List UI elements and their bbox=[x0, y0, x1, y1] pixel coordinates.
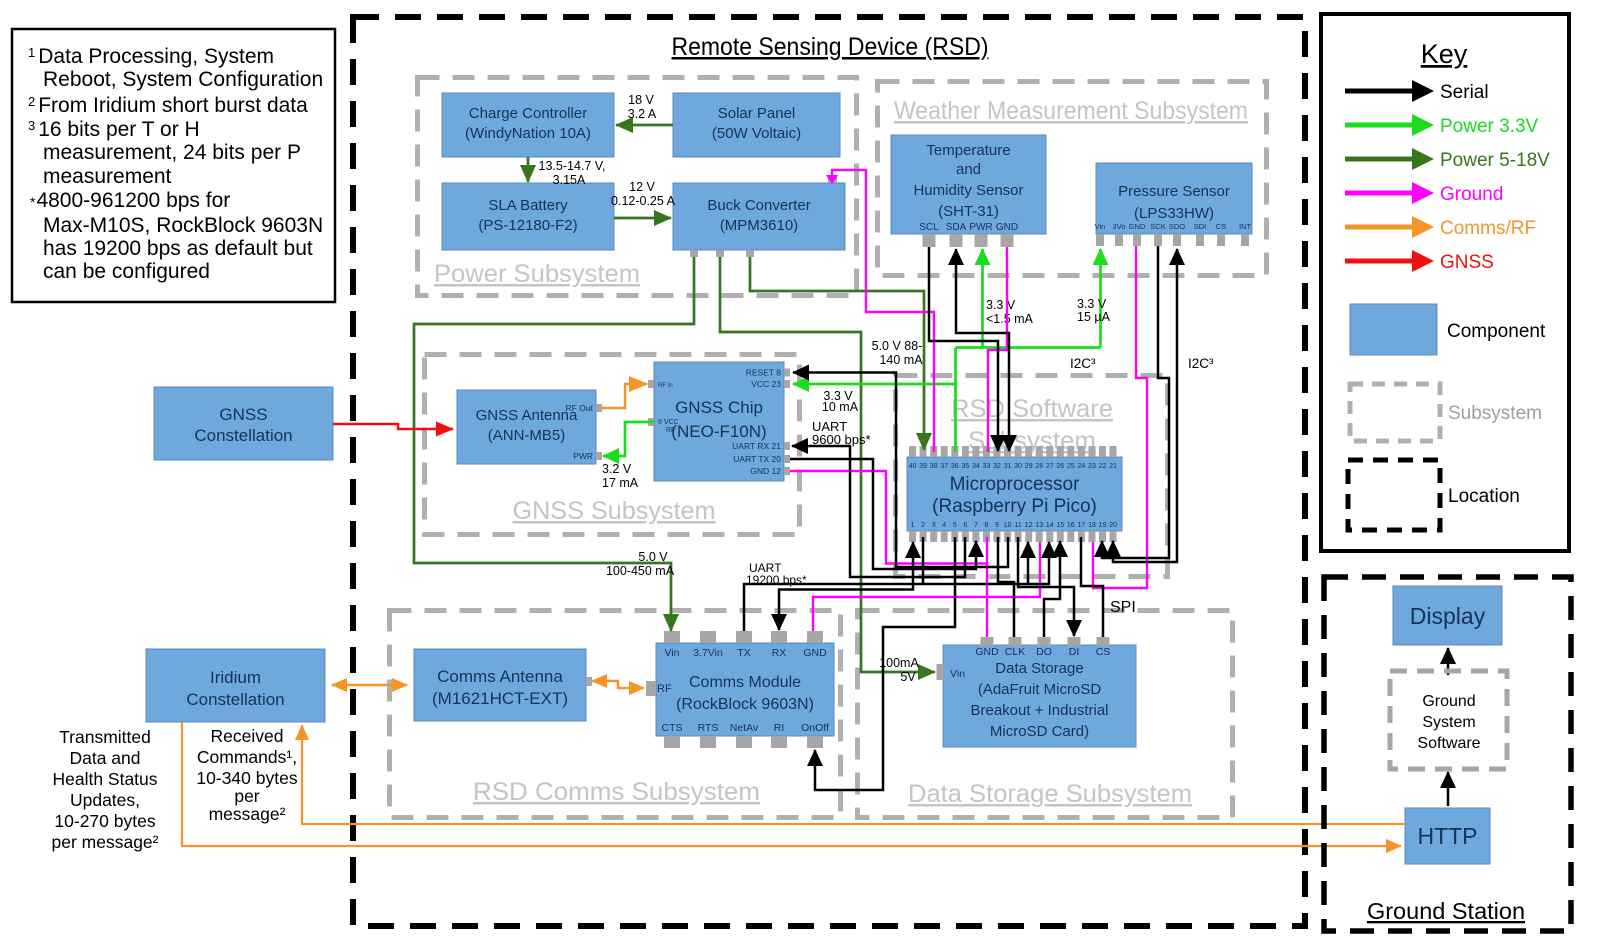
svg-text:7: 7 bbox=[974, 522, 978, 529]
svg-text:*4800-961200 bps for: *4800-961200 bps for bbox=[30, 189, 230, 212]
svg-text:28: 28 bbox=[1035, 463, 1043, 470]
svg-text:SPI: SPI bbox=[1110, 599, 1136, 616]
svg-text:34: 34 bbox=[972, 463, 980, 470]
svg-text:SDO: SDO bbox=[1169, 222, 1185, 231]
svg-text:Solar Panel: Solar Panel bbox=[718, 105, 796, 122]
svg-text:5.0 V: 5.0 V bbox=[638, 550, 668, 564]
svg-text:20: 20 bbox=[1109, 522, 1117, 529]
svg-text:37: 37 bbox=[940, 463, 948, 470]
svg-text:12: 12 bbox=[1025, 522, 1033, 529]
svg-text:Data and: Data and bbox=[69, 748, 140, 768]
svg-text:Power Subsystem: Power Subsystem bbox=[434, 260, 640, 288]
svg-text:Key: Key bbox=[1421, 39, 1468, 69]
svg-text:CS: CS bbox=[1216, 222, 1226, 231]
svg-text:26: 26 bbox=[1056, 463, 1064, 470]
svg-text:9 VCC: 9 VCC bbox=[658, 419, 679, 426]
svg-text:15: 15 bbox=[1056, 522, 1064, 529]
svg-text:25: 25 bbox=[1067, 463, 1075, 470]
svg-text:(WindyNation 10A): (WindyNation 10A) bbox=[465, 125, 591, 142]
svg-text:29: 29 bbox=[1025, 463, 1033, 470]
svg-text:316 bits per T or H: 316 bits per T or H bbox=[28, 118, 200, 141]
svg-text:10-270 bytes: 10-270 bytes bbox=[54, 811, 155, 831]
svg-text:Comms/RF: Comms/RF bbox=[1440, 218, 1536, 239]
svg-text:33: 33 bbox=[983, 463, 991, 470]
svg-text:1Data Processing, System: 1Data Processing, System bbox=[28, 45, 274, 68]
svg-text:23: 23 bbox=[1088, 463, 1096, 470]
svg-text:has 19200 bps as default but: has 19200 bps as default but bbox=[43, 237, 313, 260]
svg-text:RI: RI bbox=[774, 722, 785, 734]
svg-text:Software: Software bbox=[1417, 735, 1480, 752]
svg-text:Weather Measurement Subsystem: Weather Measurement Subsystem bbox=[894, 97, 1248, 125]
svg-text:3.3 V: 3.3 V bbox=[986, 298, 1016, 312]
svg-text:15 µA: 15 µA bbox=[1077, 310, 1111, 324]
svg-text:and: and bbox=[956, 161, 981, 178]
svg-text:SCL: SCL bbox=[919, 222, 939, 233]
svg-text:CTS: CTS bbox=[662, 722, 683, 734]
svg-text:5.0 V 88-: 5.0 V 88- bbox=[872, 339, 923, 353]
svg-text:2: 2 bbox=[921, 522, 925, 529]
svg-text:36: 36 bbox=[951, 463, 959, 470]
svg-text:Location: Location bbox=[1448, 486, 1520, 507]
svg-text:13: 13 bbox=[1035, 522, 1043, 529]
svg-text:3.2 V: 3.2 V bbox=[602, 462, 632, 476]
svg-text:Constellation: Constellation bbox=[194, 426, 292, 445]
svg-text:11: 11 bbox=[1014, 522, 1021, 529]
svg-text:OnOff: OnOff bbox=[801, 722, 829, 734]
svg-text:RESET 8: RESET 8 bbox=[746, 368, 782, 378]
svg-text:Breakout + Industrial: Breakout + Industrial bbox=[971, 702, 1109, 719]
svg-text:4: 4 bbox=[942, 522, 946, 529]
svg-text:Component: Component bbox=[1447, 321, 1546, 342]
svg-text:Vin: Vin bbox=[1095, 222, 1106, 231]
svg-text:(MPM3610): (MPM3610) bbox=[720, 217, 798, 234]
svg-text:RX: RX bbox=[772, 647, 787, 659]
svg-text:(SHT-31): (SHT-31) bbox=[938, 203, 999, 220]
svg-text:I2C³: I2C³ bbox=[1070, 356, 1096, 371]
svg-text:UART TX 20: UART TX 20 bbox=[733, 454, 781, 464]
svg-text:Vin: Vin bbox=[665, 647, 680, 659]
svg-text:40: 40 bbox=[909, 463, 917, 470]
svg-text:RF Out: RF Out bbox=[566, 403, 594, 413]
svg-text:Remote Sensing Device (RSD): Remote Sensing Device (RSD) bbox=[672, 33, 989, 61]
svg-text:Display: Display bbox=[1410, 603, 1486, 629]
svg-text:GNSS Subsystem: GNSS Subsystem bbox=[513, 497, 716, 525]
svg-text:2From Iridium short burst data: 2From Iridium short burst data bbox=[28, 94, 308, 117]
svg-text:17: 17 bbox=[1078, 522, 1086, 529]
svg-text:9: 9 bbox=[995, 522, 999, 529]
svg-text:(Raspberry Pi Pico): (Raspberry Pi Pico) bbox=[932, 496, 1097, 517]
svg-text:3.7Vin: 3.7Vin bbox=[693, 647, 723, 659]
svg-text:Vin: Vin bbox=[950, 668, 965, 680]
svg-text:27: 27 bbox=[1046, 463, 1054, 470]
svg-text:SDI: SDI bbox=[1194, 222, 1207, 231]
svg-text:RF: RF bbox=[666, 427, 675, 434]
svg-text:Comms Antenna: Comms Antenna bbox=[437, 667, 563, 686]
svg-text:DO: DO bbox=[1036, 646, 1052, 658]
svg-text:CLK: CLK bbox=[1005, 646, 1025, 658]
svg-text:GND: GND bbox=[803, 647, 827, 659]
svg-text:(RockBlock 9603N): (RockBlock 9603N) bbox=[676, 696, 814, 713]
svg-text:Health Status: Health Status bbox=[52, 769, 157, 789]
svg-text:Max-M10S, RockBlock 9603N: Max-M10S, RockBlock 9603N bbox=[43, 214, 323, 237]
svg-text:SCK: SCK bbox=[1150, 222, 1165, 231]
svg-text:5V: 5V bbox=[900, 670, 916, 684]
svg-text:RSD Comms Subsystem: RSD Comms Subsystem bbox=[473, 778, 760, 806]
svg-text:GND: GND bbox=[975, 646, 999, 658]
svg-text:SLA Battery: SLA Battery bbox=[488, 197, 568, 214]
svg-text:35: 35 bbox=[962, 463, 970, 470]
svg-text:Comms Module: Comms Module bbox=[689, 674, 801, 691]
svg-text:System: System bbox=[1422, 714, 1475, 731]
svg-text:14: 14 bbox=[1046, 522, 1054, 529]
svg-text:MicroSD Card): MicroSD Card) bbox=[990, 723, 1089, 740]
svg-text:10-340 bytes: 10-340 bytes bbox=[196, 768, 297, 788]
svg-text:GND 12: GND 12 bbox=[750, 466, 781, 476]
svg-text:SDA: SDA bbox=[946, 222, 967, 233]
svg-text:Humidity Sensor: Humidity Sensor bbox=[913, 182, 1023, 199]
svg-text:(LPS33HW): (LPS33HW) bbox=[1134, 205, 1214, 222]
svg-text:140 mA: 140 mA bbox=[879, 353, 923, 367]
svg-text:GNSS: GNSS bbox=[219, 405, 267, 424]
svg-text:18 V: 18 V bbox=[628, 93, 654, 107]
svg-text:Subsystem: Subsystem bbox=[1448, 403, 1542, 424]
svg-text:6: 6 bbox=[963, 522, 967, 529]
svg-text:Charge Controller: Charge Controller bbox=[469, 105, 587, 122]
svg-text:Temperature: Temperature bbox=[926, 142, 1010, 159]
svg-text:HTTP: HTTP bbox=[1417, 823, 1477, 849]
svg-text:CS: CS bbox=[1096, 646, 1111, 658]
svg-text:Data Storage: Data Storage bbox=[995, 660, 1083, 677]
svg-text:PWR: PWR bbox=[969, 222, 992, 233]
svg-text:GNSS: GNSS bbox=[1440, 252, 1494, 273]
svg-text:31: 31 bbox=[1004, 463, 1012, 470]
svg-text:1: 1 bbox=[911, 522, 915, 529]
svg-text:Iridium: Iridium bbox=[210, 668, 261, 687]
svg-text:100mA: 100mA bbox=[879, 656, 919, 670]
svg-text:Commands¹,: Commands¹, bbox=[197, 747, 297, 767]
svg-text:10 mA: 10 mA bbox=[822, 400, 859, 414]
svg-text:DI: DI bbox=[1069, 646, 1080, 658]
svg-text:GNSS Chip: GNSS Chip bbox=[675, 398, 763, 417]
svg-text:(NEO-F10N): (NEO-F10N) bbox=[671, 422, 766, 441]
svg-text:Ground: Ground bbox=[1422, 693, 1475, 710]
svg-text:9600 bps*: 9600 bps* bbox=[812, 432, 871, 447]
svg-text:5: 5 bbox=[953, 522, 957, 529]
svg-text:(M1621HCT-EXT): (M1621HCT-EXT) bbox=[432, 689, 568, 708]
svg-text:19: 19 bbox=[1099, 522, 1107, 529]
svg-text:INT: INT bbox=[1239, 222, 1252, 231]
svg-text:39: 39 bbox=[919, 463, 927, 470]
svg-text:per message²: per message² bbox=[52, 832, 159, 852]
svg-text:Pressure Sensor: Pressure Sensor bbox=[1118, 183, 1230, 200]
svg-text:21: 21 bbox=[1109, 463, 1117, 470]
svg-text:24: 24 bbox=[1078, 463, 1086, 470]
svg-text:19200 bps*: 19200 bps* bbox=[746, 573, 807, 587]
svg-text:PWR: PWR bbox=[573, 451, 593, 461]
svg-text:32: 32 bbox=[993, 463, 1001, 470]
svg-text:Ground Station: Ground Station bbox=[1367, 898, 1525, 924]
svg-text:Updates,: Updates, bbox=[70, 790, 140, 810]
svg-text:UART RX 21: UART RX 21 bbox=[732, 441, 781, 451]
svg-text:12 V: 12 V bbox=[629, 180, 655, 194]
svg-text:RSD Software: RSD Software bbox=[951, 395, 1113, 423]
svg-text:3.2 A: 3.2 A bbox=[628, 107, 657, 121]
svg-text:17 mA: 17 mA bbox=[602, 476, 639, 490]
svg-text:Received: Received bbox=[211, 726, 284, 746]
svg-text:Ground: Ground bbox=[1440, 184, 1503, 205]
svg-text:can be configured: can be configured bbox=[43, 260, 210, 283]
svg-text:0.12-0.25 A: 0.12-0.25 A bbox=[611, 194, 676, 208]
svg-text:3.15A: 3.15A bbox=[553, 173, 586, 187]
svg-text:Microprocessor: Microprocessor bbox=[950, 474, 1081, 495]
svg-text:RF In: RF In bbox=[658, 383, 673, 389]
svg-text:NetAv: NetAv bbox=[730, 722, 759, 734]
svg-text:Transmitted: Transmitted bbox=[59, 727, 151, 747]
svg-text:Serial: Serial bbox=[1440, 82, 1489, 103]
svg-text:measurement: measurement bbox=[43, 165, 172, 188]
svg-text:VCC 23: VCC 23 bbox=[751, 379, 781, 389]
svg-text:(ANN-MB5): (ANN-MB5) bbox=[488, 427, 566, 444]
svg-text:(PS-12180-F2): (PS-12180-F2) bbox=[478, 217, 577, 234]
svg-text:Buck Converter: Buck Converter bbox=[707, 197, 810, 214]
svg-text:GNSS Antenna: GNSS Antenna bbox=[476, 407, 578, 424]
svg-text:(50W Voltaic): (50W Voltaic) bbox=[712, 125, 801, 142]
svg-text:Reboot, System Configuration: Reboot, System Configuration bbox=[43, 68, 323, 91]
svg-text:22: 22 bbox=[1099, 463, 1107, 470]
svg-text:10: 10 bbox=[1004, 522, 1012, 529]
svg-text:18: 18 bbox=[1088, 522, 1096, 529]
svg-text:per: per bbox=[234, 786, 259, 806]
svg-text:3.3 V: 3.3 V bbox=[1077, 297, 1107, 311]
svg-text:30: 30 bbox=[1014, 463, 1022, 470]
svg-text:Power 5-18V: Power 5-18V bbox=[1440, 150, 1550, 171]
svg-text:13.5-14.7 V,: 13.5-14.7 V, bbox=[539, 159, 606, 173]
svg-text:Constellation: Constellation bbox=[186, 690, 284, 709]
svg-text:GND: GND bbox=[996, 222, 1018, 233]
svg-text:<1.5 mA: <1.5 mA bbox=[986, 312, 1034, 326]
svg-text:I2C³: I2C³ bbox=[1188, 356, 1214, 371]
svg-text:RTS: RTS bbox=[698, 722, 719, 734]
svg-text:(AdaFruit MicroSD: (AdaFruit MicroSD bbox=[978, 681, 1102, 698]
svg-text:38: 38 bbox=[930, 463, 938, 470]
svg-text:RF: RF bbox=[657, 683, 672, 695]
svg-text:16: 16 bbox=[1067, 522, 1075, 529]
svg-text:3: 3 bbox=[932, 522, 936, 529]
svg-text:GND: GND bbox=[1129, 222, 1146, 231]
svg-text:message²: message² bbox=[209, 804, 286, 824]
svg-text:TX: TX bbox=[737, 647, 750, 659]
svg-text:8: 8 bbox=[985, 522, 989, 529]
svg-text:100-450 mA: 100-450 mA bbox=[606, 564, 675, 578]
svg-text:Data Storage Subsystem: Data Storage Subsystem bbox=[908, 780, 1192, 808]
svg-text:Power 3.3V: Power 3.3V bbox=[1440, 116, 1539, 137]
svg-text:3Vo: 3Vo bbox=[1113, 222, 1126, 231]
svg-text:measurement, 24 bits per P: measurement, 24 bits per P bbox=[43, 141, 301, 164]
